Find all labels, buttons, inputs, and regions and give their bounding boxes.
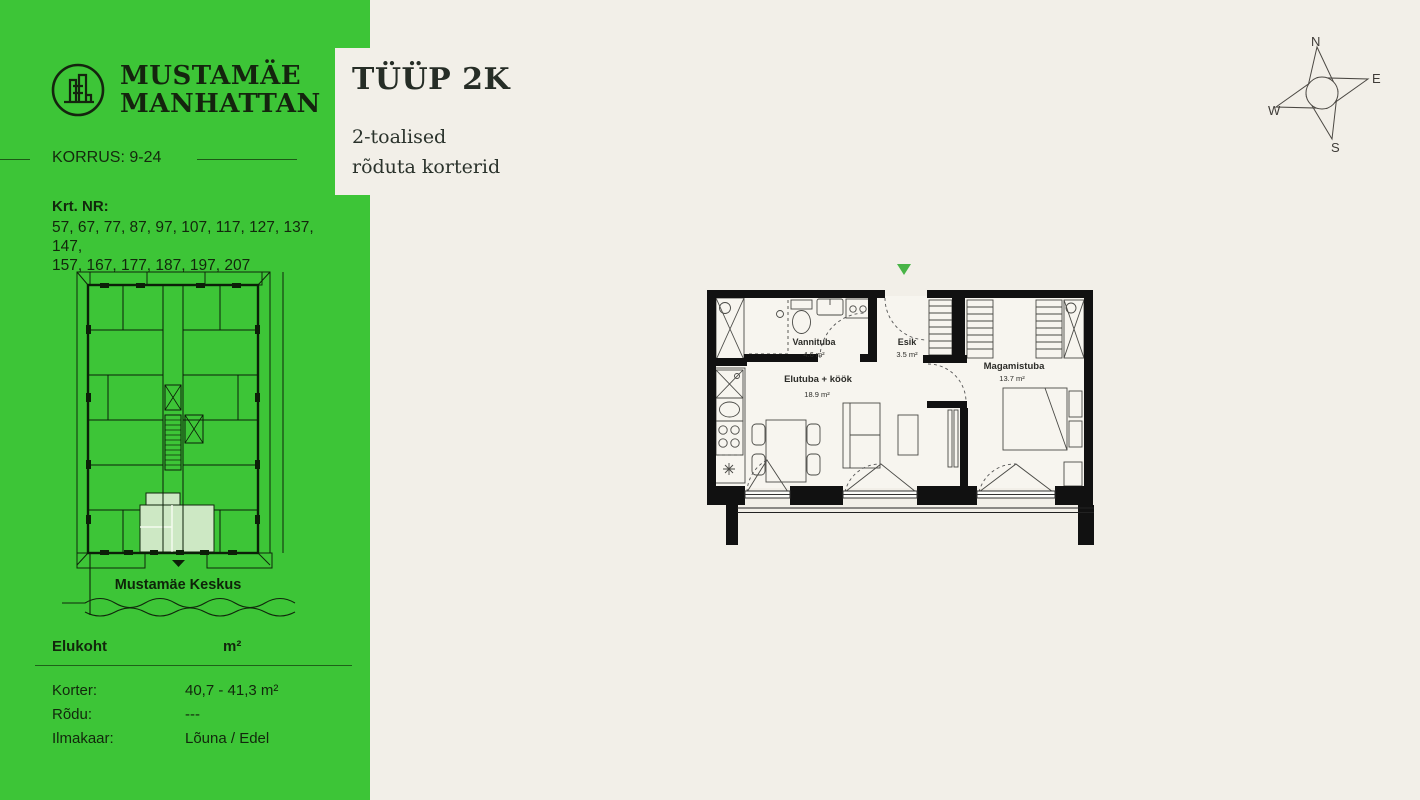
room-area-magamistuba: 13.7 m²	[999, 374, 1025, 383]
row-value: ---	[185, 706, 200, 723]
row-label: Ilmakaar:	[52, 730, 185, 747]
row-value: 40,7 - 41,3 m²	[185, 682, 278, 699]
building-mini-plan: Mustamäe Keskus	[60, 265, 322, 620]
room-area-elutuba: 18.9 m²	[804, 390, 830, 399]
info-table-divider	[35, 665, 352, 666]
apartment-numbers-label: Krt. NR:	[52, 198, 109, 215]
mini-plan-entrance-marker	[172, 560, 185, 567]
compass-w-label: W	[1268, 103, 1281, 118]
floor-label: KORRUS: 9-24	[52, 149, 161, 167]
sidebar: MUSTAMÄE MANHATTAN KORRUS: 9-24 Krt. NR:…	[0, 0, 370, 800]
room-area-vannituba: 4.6 m²	[803, 350, 825, 359]
header-col-elukoht: Elukoht	[52, 638, 107, 655]
compass-e-label: E	[1372, 71, 1381, 86]
room-area-esik: 3.5 m²	[896, 350, 918, 359]
brand-wordmark: MUSTAMÄE MANHATTAN	[120, 62, 321, 118]
room-label-esik: Esik	[898, 337, 918, 347]
compass-n-label: N	[1311, 35, 1320, 49]
room-label-vannituba: Vannituba	[792, 337, 836, 347]
header-col-m2: m²	[223, 638, 241, 655]
info-table: Elukoht m² Korter: 40,7 - 41,3 m² Rõdu: …	[35, 638, 352, 754]
entrance-marker-icon	[897, 264, 911, 275]
table-row: Korter: 40,7 - 41,3 m²	[35, 682, 352, 699]
brand-logo-icon	[50, 62, 106, 118]
info-table-header: Elukoht m²	[35, 638, 352, 655]
row-value: Lõuna / Edel	[185, 730, 269, 747]
apartment-floor-plan: Vannituba 4.6 m² Esik 3.5 m² Elutuba + k…	[700, 258, 1110, 558]
highlighted-apartment	[140, 493, 214, 552]
location-label: Mustamäe Keskus	[115, 577, 242, 593]
page-subtitle: 2-toalised rõduta korterid	[352, 122, 500, 183]
brand-block: MUSTAMÄE MANHATTAN	[50, 62, 321, 118]
subtitle-line1: 2-toalised	[352, 122, 500, 152]
table-row: Ilmakaar: Lõuna / Edel	[35, 730, 352, 747]
brand-line2: MANHATTAN	[120, 90, 321, 118]
row-label: Korter:	[52, 682, 185, 699]
apartment-numbers-line1: 57, 67, 77, 87, 97, 107, 117, 127, 137, …	[52, 219, 342, 257]
floor-row: KORRUS: 9-24	[0, 149, 370, 169]
compass-s-label: S	[1331, 140, 1340, 155]
page-title: TÜÜP 2K	[352, 62, 510, 97]
room-label-magamistuba: Magamistuba	[984, 361, 1045, 372]
room-label-elutuba: Elutuba + köök	[784, 374, 853, 385]
type-card: TÜÜP 2K 2-toalised rõduta korterid	[335, 48, 535, 195]
divider-line-left	[0, 159, 30, 160]
row-label: Rõdu:	[52, 706, 185, 723]
compass-rose-icon: N E S W	[1268, 35, 1388, 155]
divider-line-right	[197, 159, 297, 160]
brand-line1: MUSTAMÄE	[120, 62, 321, 90]
table-row: Rõdu: ---	[35, 706, 352, 723]
subtitle-line2: rõduta korterid	[352, 152, 500, 182]
